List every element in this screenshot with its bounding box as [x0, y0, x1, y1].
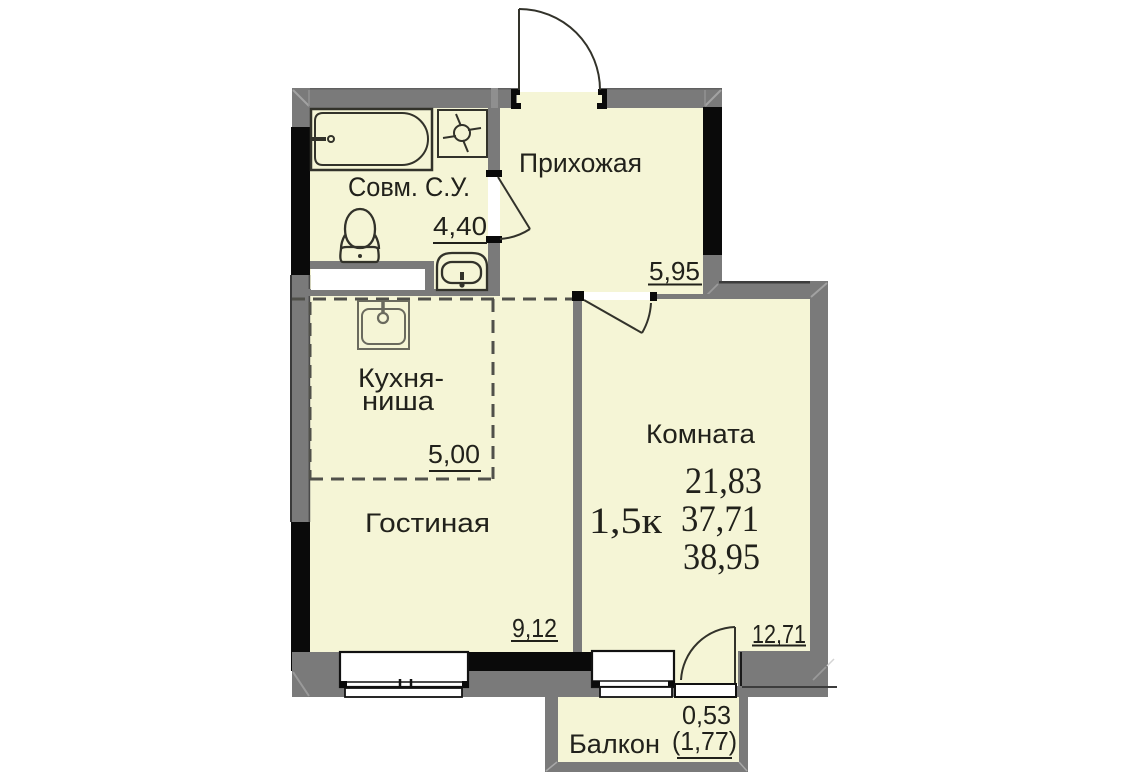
svg-text:Прихожая: Прихожая — [519, 148, 642, 178]
svg-text:9,12: 9,12 — [512, 613, 557, 643]
svg-text:1,5к: 1,5к — [589, 501, 663, 542]
svg-text:21,83: 21,83 — [685, 461, 762, 502]
svg-text:Балкон: Балкон — [569, 729, 660, 759]
svg-text:5,00: 5,00 — [428, 439, 480, 469]
svg-text:(1,77): (1,77) — [672, 726, 737, 756]
svg-text:37,71: 37,71 — [681, 499, 759, 540]
svg-text:Совм. С.У.: Совм. С.У. — [348, 172, 470, 202]
svg-text:ниша: ниша — [362, 386, 435, 416]
svg-text:4,40: 4,40 — [433, 211, 487, 241]
svg-text:38,95: 38,95 — [683, 537, 760, 578]
svg-text:5,95: 5,95 — [649, 256, 700, 286]
svg-text:Комната: Комната — [646, 419, 756, 449]
svg-text:Гостиная: Гостиная — [365, 508, 490, 538]
